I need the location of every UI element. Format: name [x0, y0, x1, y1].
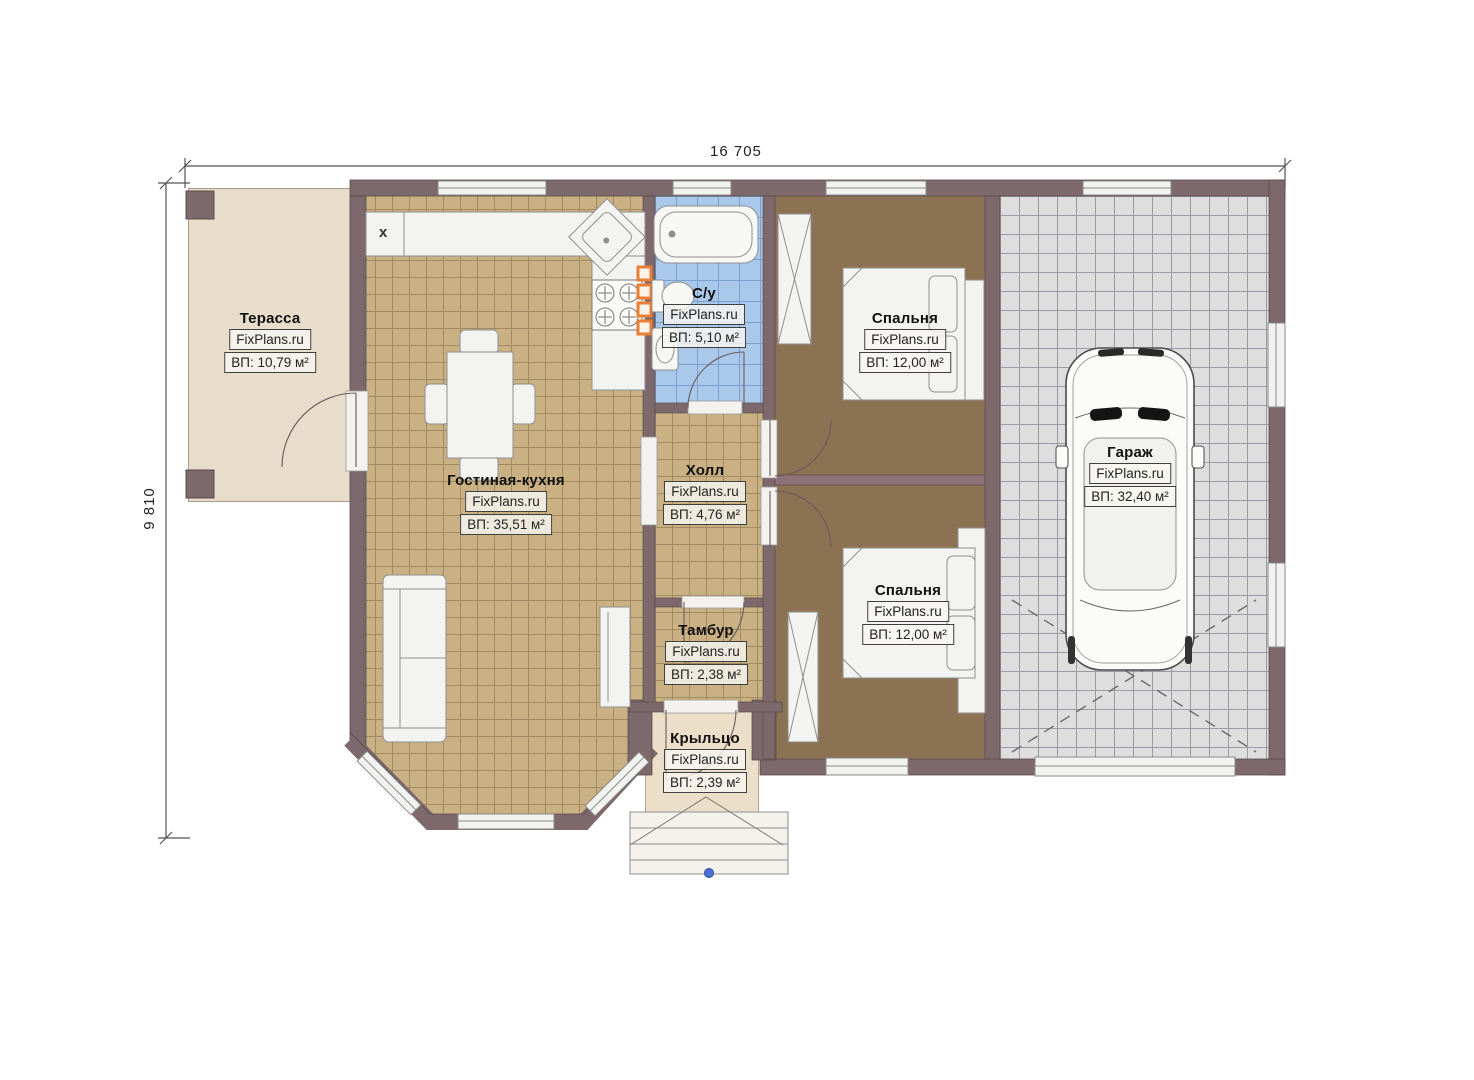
room-brand: FixPlans.ru [465, 491, 547, 512]
dimension-height-label: 9 810 [141, 487, 158, 530]
car-top-view [1056, 348, 1204, 670]
window-bedroom1-top [826, 181, 926, 195]
bedroom1-door [770, 420, 831, 476]
room-brand: FixPlans.ru [664, 749, 746, 770]
window-garage-top [1083, 181, 1171, 195]
terrace-door [282, 393, 356, 467]
room-label-living: Гостиная-кухня FixPlans.ru ВП: 35,51 м² [447, 472, 565, 535]
room-brand: FixPlans.ru [1089, 463, 1171, 484]
room-brand: FixPlans.ru [864, 329, 946, 350]
tv-cabinet [600, 607, 630, 707]
room-brand: FixPlans.ru [867, 601, 949, 622]
window-bath-top [673, 181, 731, 195]
room-label-terrace: Терасса FixPlans.ru ВП: 10,79 м² [224, 310, 316, 373]
room-name: Тамбур [664, 622, 748, 639]
room-label-hall: Холл FixPlans.ru ВП: 4,76 м² [663, 462, 747, 525]
room-brand: FixPlans.ru [664, 481, 746, 502]
kitchen-x-marker: x [379, 224, 387, 241]
room-name: Крыльцо [663, 730, 747, 747]
dimension-width-label: 16 705 [710, 143, 762, 160]
window-kitchen-top [438, 181, 546, 195]
window-garage-right-1 [1268, 323, 1285, 407]
garage-contents [1012, 348, 1256, 752]
porch-stairs [630, 797, 788, 878]
terrace-posts [186, 191, 214, 498]
room-area: ВП: 5,10 м² [662, 327, 746, 348]
room-label-bedroom2: Спальня FixPlans.ru ВП: 12,00 м² [862, 582, 954, 645]
room-brand: FixPlans.ru [663, 304, 745, 325]
garage-gate [1035, 757, 1235, 776]
room-area: ВП: 12,00 м² [862, 624, 954, 645]
window-bedroom2-bottom [826, 758, 908, 775]
bedroom2-door [770, 491, 831, 547]
room-name: Спальня [859, 310, 951, 327]
window-bay-center [458, 814, 554, 829]
room-name: Терасса [224, 310, 316, 327]
sofa [383, 575, 446, 742]
window-garage-right-2 [1268, 563, 1285, 647]
stairs-reference-dot [705, 869, 714, 878]
room-label-garage: Гараж FixPlans.ru ВП: 32,40 м² [1084, 444, 1176, 507]
room-name: Гостиная-кухня [447, 472, 565, 489]
room-area: ВП: 2,39 м² [663, 772, 747, 793]
room-label-bathroom: С/у FixPlans.ru ВП: 5,10 м² [662, 285, 746, 348]
room-name: Спальня [862, 582, 954, 599]
room-area: ВП: 4,76 м² [663, 504, 747, 525]
bath-door [688, 352, 744, 408]
window-bay-right [585, 752, 649, 816]
dining-set [425, 330, 535, 480]
window-bay-left [357, 751, 421, 815]
room-label-tambour: Тамбур FixPlans.ru ВП: 2,38 м² [664, 622, 748, 685]
stove [592, 280, 642, 330]
room-brand: FixPlans.ru [665, 641, 747, 662]
room-name: Холл [663, 462, 747, 479]
floor-plan-canvas: 16 705 9 810 x Терасса FixPlans.ru ВП: 1… [0, 0, 1474, 1080]
room-area: ВП: 12,00 м² [859, 352, 951, 373]
plan-linework [0, 0, 1474, 1080]
room-label-porch: Крыльцо FixPlans.ru ВП: 2,39 м² [663, 730, 747, 793]
room-brand: FixPlans.ru [229, 329, 311, 350]
room-label-bedroom1: Спальня FixPlans.ru ВП: 12,00 м² [859, 310, 951, 373]
room-area: ВП: 2,38 м² [664, 664, 748, 685]
room-area: ВП: 32,40 м² [1084, 486, 1176, 507]
room-name: С/у [662, 285, 746, 302]
room-name: Гараж [1084, 444, 1176, 461]
room-area: ВП: 10,79 м² [224, 352, 316, 373]
room-area: ВП: 35,51 м² [460, 514, 552, 535]
